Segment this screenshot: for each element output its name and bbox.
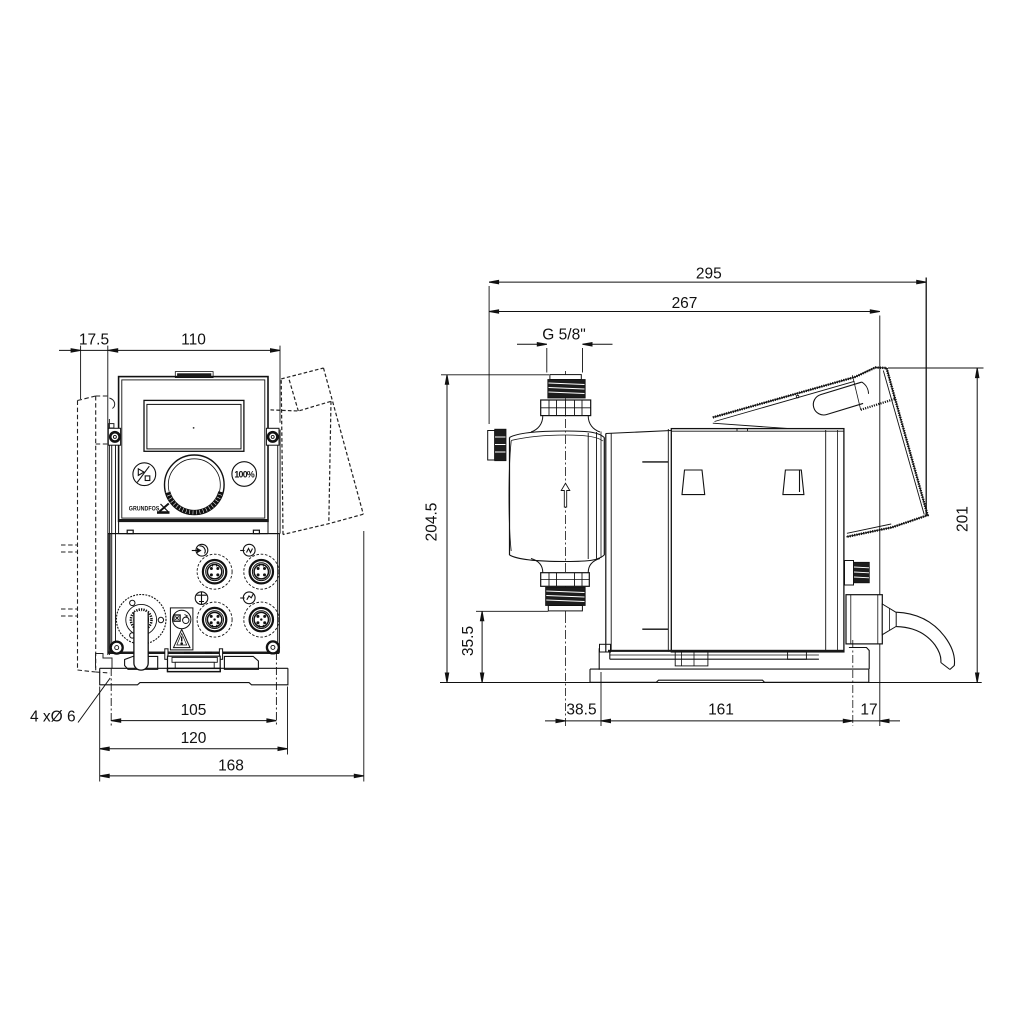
svg-text:G 5/8": G 5/8" [542,327,585,344]
svg-text:295: 295 [696,266,722,283]
svg-text:17.5: 17.5 [79,332,109,349]
svg-text:204.5: 204.5 [424,503,441,542]
svg-text:105: 105 [181,702,207,719]
svg-text:38.5: 38.5 [566,702,596,719]
svg-text:17: 17 [860,702,877,719]
svg-text:GRUNDFOS: GRUNDFOS [129,505,160,512]
svg-text:120: 120 [181,730,207,747]
svg-text:110: 110 [181,332,206,349]
svg-text:201: 201 [955,506,972,532]
svg-text:168: 168 [218,757,244,774]
svg-text:4 xØ 6: 4 xØ 6 [30,709,76,726]
svg-text:35.5: 35.5 [460,626,477,656]
svg-text:267: 267 [672,295,698,312]
svg-text:100%: 100% [234,469,255,479]
svg-text:161: 161 [708,702,734,719]
